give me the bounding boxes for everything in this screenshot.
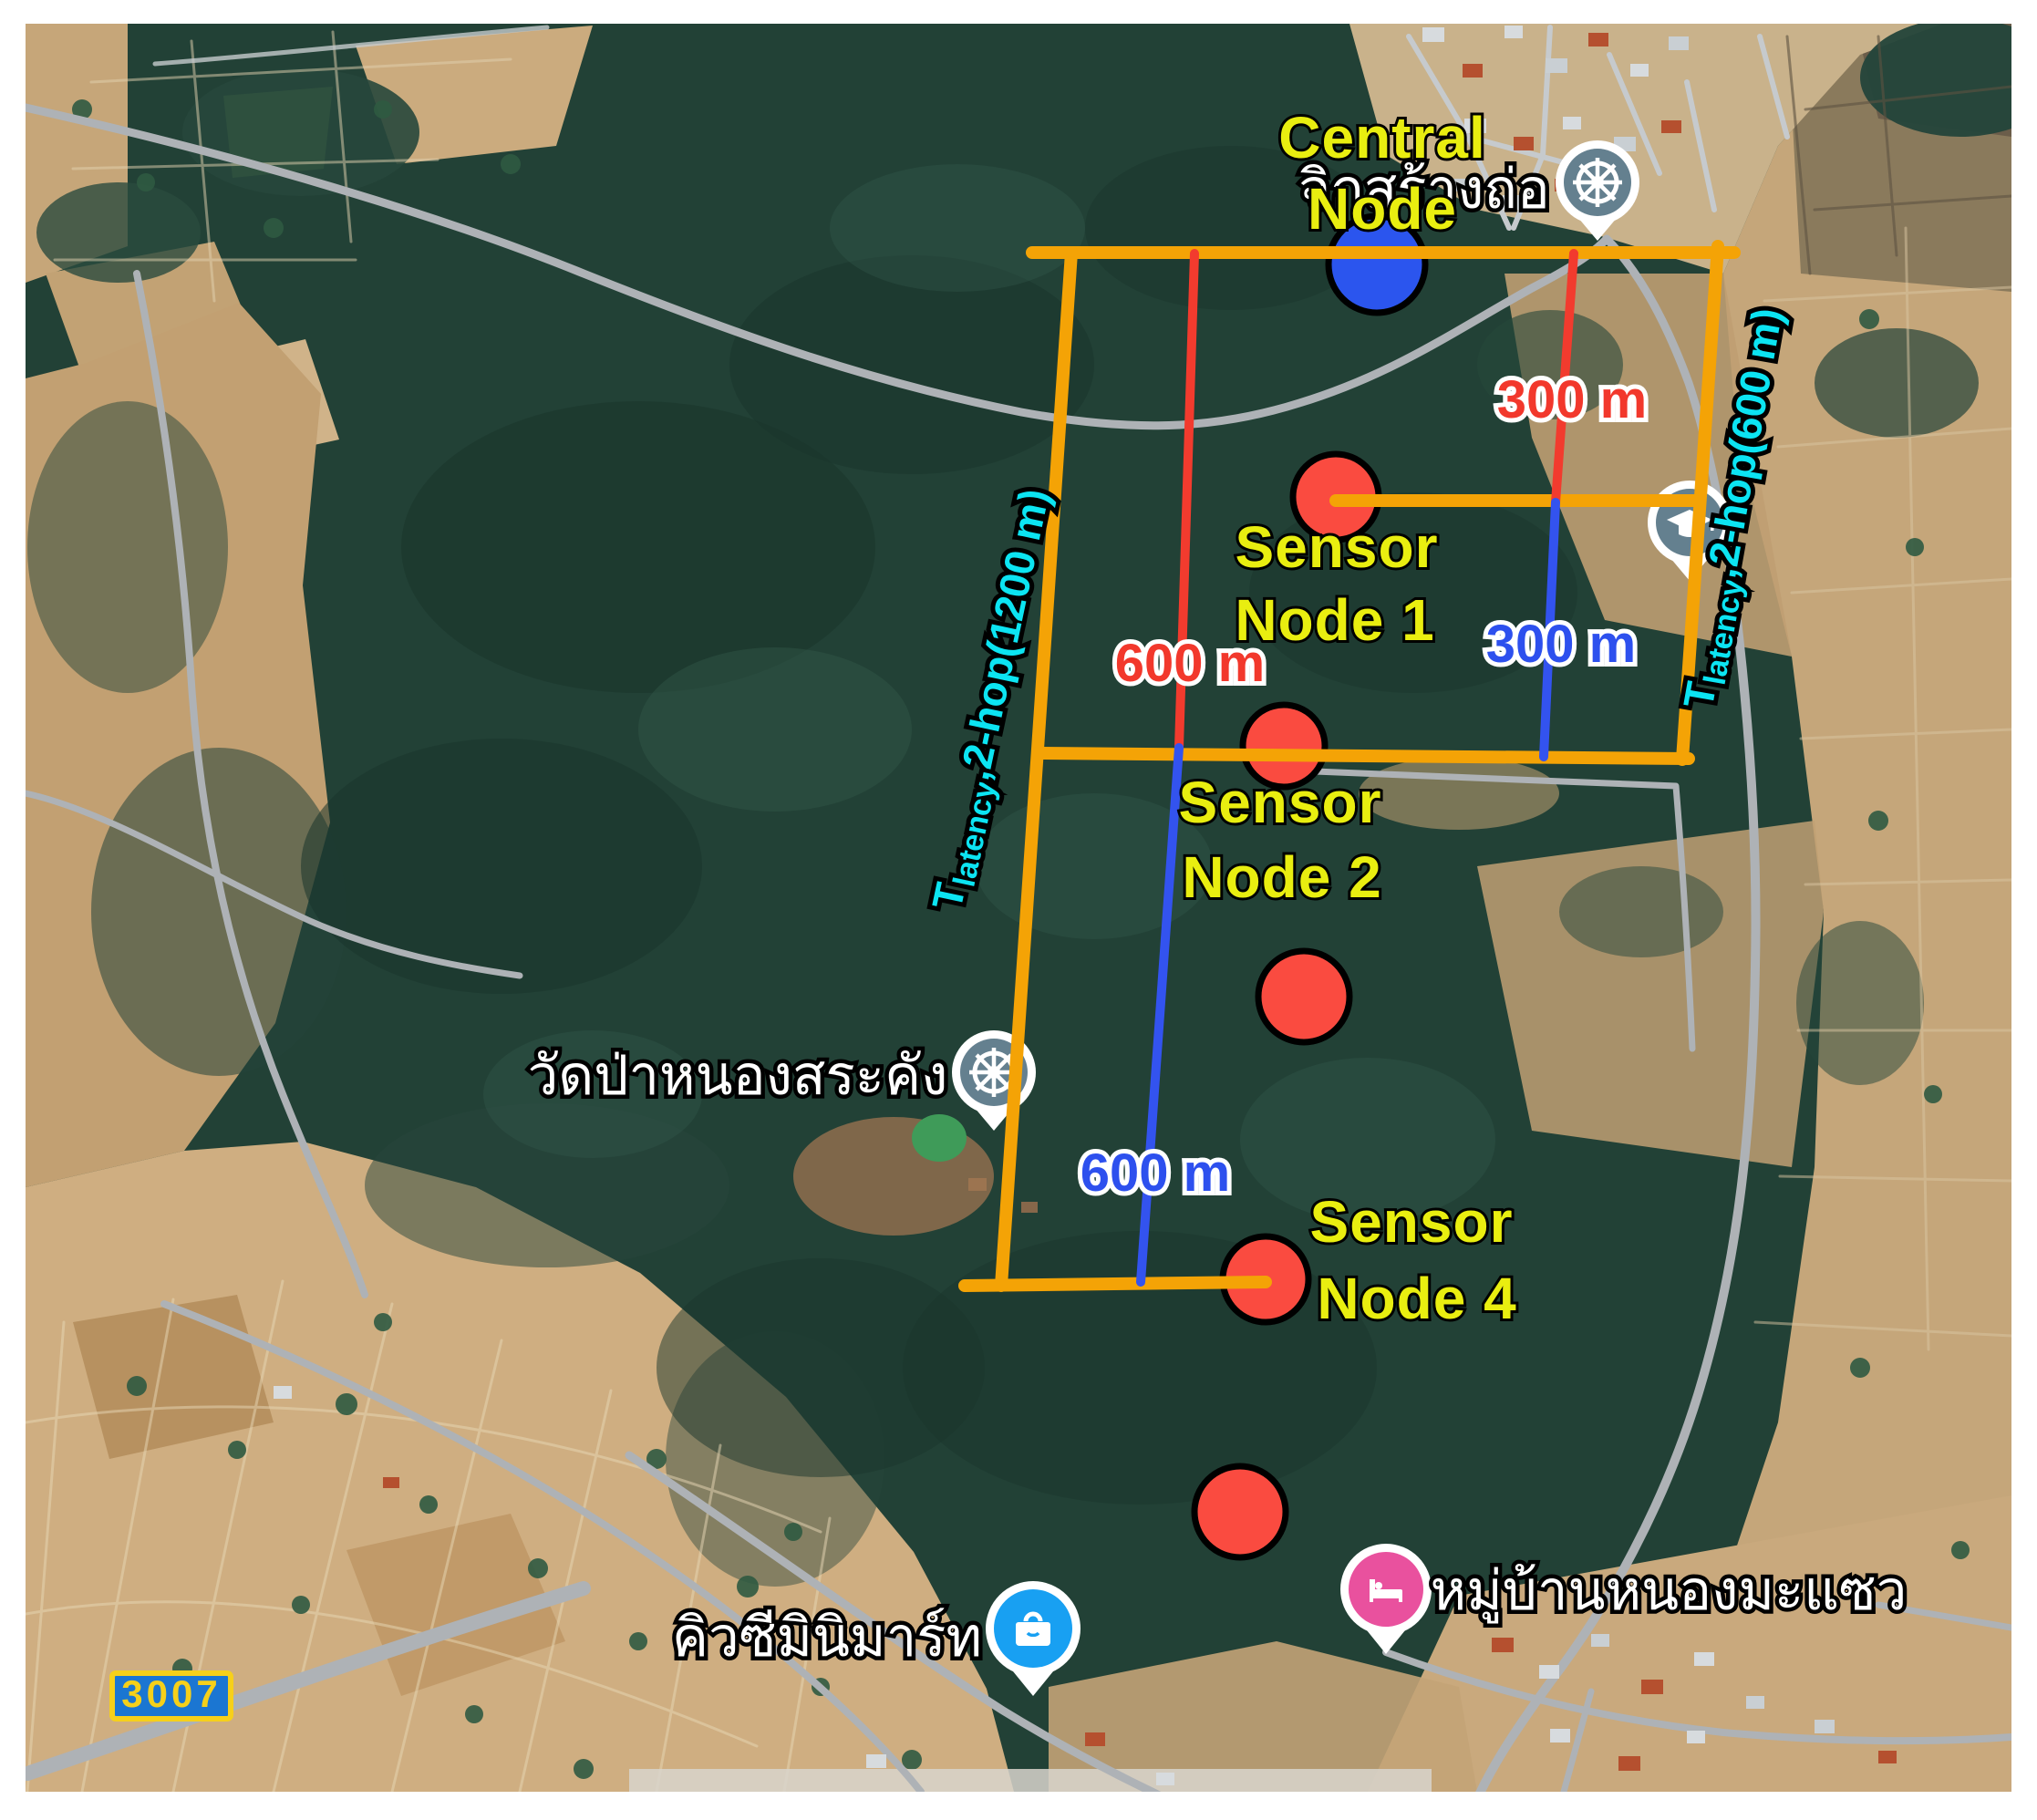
village-bottom-label: หมู่บ้านหนองมะแซว (1431, 1559, 1908, 1624)
satellite-map: จิกสร้างถ่อ วัดป่าหนองสระคัง คิวซีมินิมา… (0, 0, 2037, 1820)
sensor-node-3-marker (1258, 951, 1349, 1042)
road-badge-number: 3007 (121, 1672, 221, 1715)
distance-label-300m-red: 300 m (1497, 370, 1647, 429)
sensor-node-4-label-line2: Node 4 (1317, 1266, 1516, 1331)
road-badge: 3007 (112, 1672, 231, 1719)
dharma-wheel-icon (1573, 158, 1622, 207)
link-line-node4 (965, 1282, 1266, 1286)
distance-label-600m-red: 600 m (1115, 634, 1265, 693)
distance-label-300m-blue: 300 m (1486, 615, 1636, 674)
central-node-label-line1: Central (1278, 105, 1486, 171)
sensor-node-2-label-line1: Sensor (1179, 770, 1382, 835)
central-node-label-line2: Node (1308, 176, 1457, 242)
minimart-label: คิวซีมินิมาร์ท (672, 1606, 982, 1670)
distance-label-600m-blue: 600 m (1081, 1143, 1230, 1203)
temple-label: วัดป่าหนองสระคัง (528, 1044, 948, 1108)
sensor-node-4-label-line1: Sensor (1310, 1189, 1514, 1255)
sensor-node-1-label-line1: Sensor (1236, 514, 1439, 580)
sensor-node-5-marker (1194, 1466, 1286, 1557)
figure-canvas: จิกสร้างถ่อ วัดป่าหนองสระคัง คิวซีมินิมา… (0, 0, 2037, 1820)
sensor-node-2-label-line2: Node 2 (1182, 844, 1381, 910)
pond (912, 1114, 967, 1162)
link-line-node2 (1038, 753, 1689, 759)
